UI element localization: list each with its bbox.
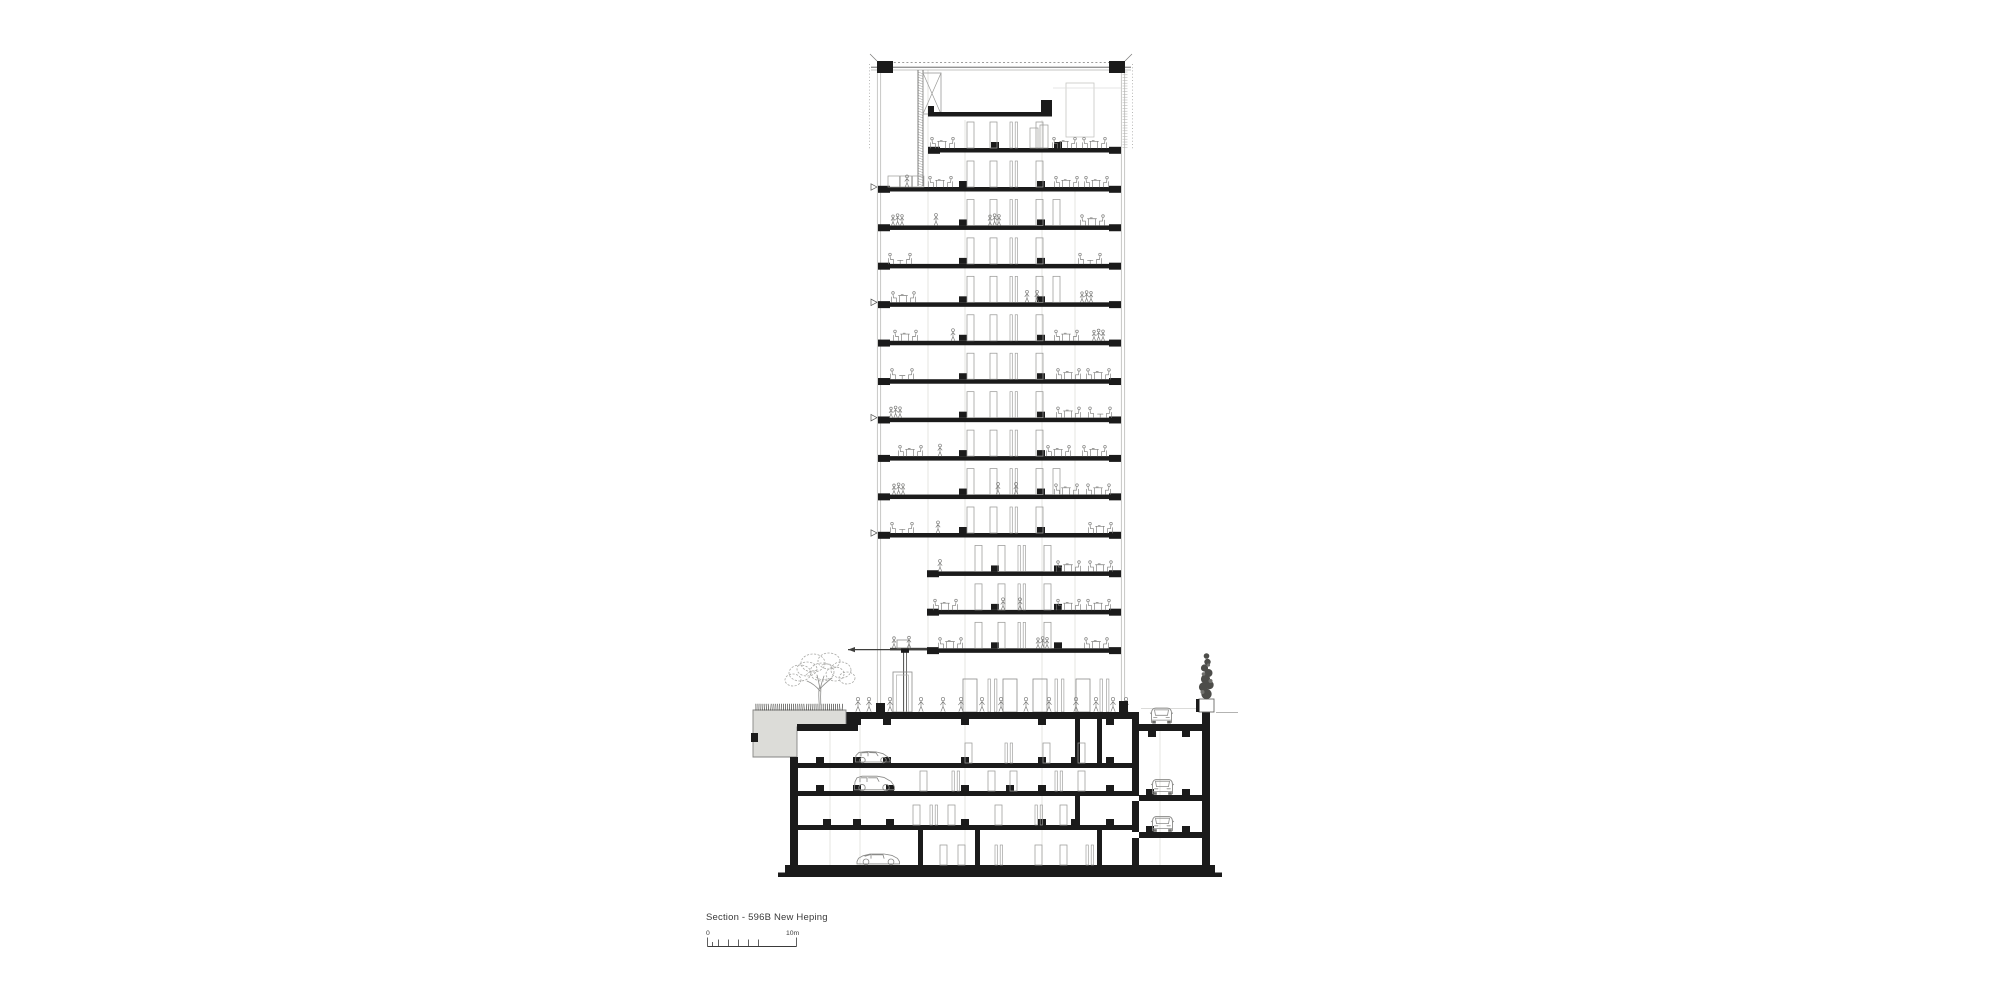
people-lounge-pair [890,369,913,380]
car-front-icon [1150,708,1172,723]
tree-icon [785,653,855,705]
people-lounge-pair [888,253,911,264]
section-drawing [0,0,2000,1000]
floor-people [890,369,1110,380]
car-side-icon [857,854,900,865]
people-desk-pair [1084,638,1108,649]
floor-doors [967,238,1043,264]
people-meeting-group [1036,637,1049,649]
floor-doors [967,353,1043,379]
tower-structure [870,54,1132,654]
people-meeting-group [889,406,902,418]
title-block: Section - 596B New Heping 0 10m [706,912,828,949]
floor-doors [967,161,1043,187]
cars [855,708,1174,865]
floor-doors [967,199,1060,225]
interior-fittings [967,122,1060,648]
floor-slab [878,373,1121,385]
floor-doors [967,392,1043,418]
lobby [848,636,1109,712]
floor-doors [975,545,1051,571]
people-desk-pair [1054,176,1078,187]
people-meeting-group [892,483,905,495]
people-lounge-pair [1088,407,1111,418]
scale-bar: 0 10m [706,927,816,949]
shrub-icon [1196,653,1214,712]
floor-people [893,329,1104,341]
car-front-icon [1151,779,1173,794]
floor-people [888,175,1109,187]
people-meeting-group [1092,329,1105,341]
people-desk-pair [1086,484,1110,495]
people-desk-pair [1056,407,1080,418]
people-desk-pair [1086,599,1110,610]
people-meeting-group [1080,291,1093,303]
floor-slab [878,412,1121,424]
people-desk-pair [1056,369,1080,380]
people-lounge-pair [1078,253,1101,264]
floor-people [888,253,1101,264]
canvas: Section - 596B New Heping 0 10m [0,0,2000,1000]
parapet [870,54,1132,73]
floor-doors [975,584,1051,610]
floor-people [891,290,1092,302]
people-desk-pair [930,137,954,148]
people-desk-pair [1082,137,1106,148]
floor-doors [967,122,1043,148]
floor-doors [967,276,1060,302]
floor-doors [967,469,1060,495]
floor-doors [967,430,1043,456]
people-desk-pair [938,638,962,649]
people-desk-pair [933,599,957,610]
floor-slab [878,296,1121,308]
people-desk-pair [1046,445,1070,456]
people-desk-pair [898,445,922,456]
roof-mechanical [918,70,1121,186]
people-lounge-pair [890,522,913,533]
floor-people [892,483,1110,495]
people-desk-pair [1088,561,1112,572]
scale-ticks [708,938,797,947]
car-front-icon [1151,816,1173,831]
people-desk-pair [928,176,952,187]
people-desk-pair [893,330,917,341]
floor-people [890,521,1112,533]
scale-end-label: 10m [786,930,800,937]
basement-doors [965,743,1085,763]
floor-slab [878,527,1121,539]
floor-doors [975,622,1051,648]
tower-facade [870,64,1133,712]
drawing-title: Section - 596B New Heping [706,912,828,923]
basement-doors [920,771,1085,791]
floor-people [930,137,1106,148]
people-desk-pair [1084,176,1108,187]
floor-people [933,598,1110,610]
floor-doors [967,315,1043,341]
floor-doors [967,507,1043,533]
people-desk-pair [891,292,915,303]
people-desk-pair [1080,215,1104,226]
people-desk-pair [1086,369,1110,380]
floor-slab [878,258,1121,270]
people-meeting-group [891,214,904,226]
people-desk-pair [1082,445,1106,456]
people-desk-pair [1088,522,1112,533]
scale-start-label: 0 [706,930,710,937]
basement-doors [940,845,1094,865]
floor-people [889,406,1111,418]
floor-slab [928,142,1121,154]
floor-people [891,213,1104,225]
green-roof [751,704,857,757]
